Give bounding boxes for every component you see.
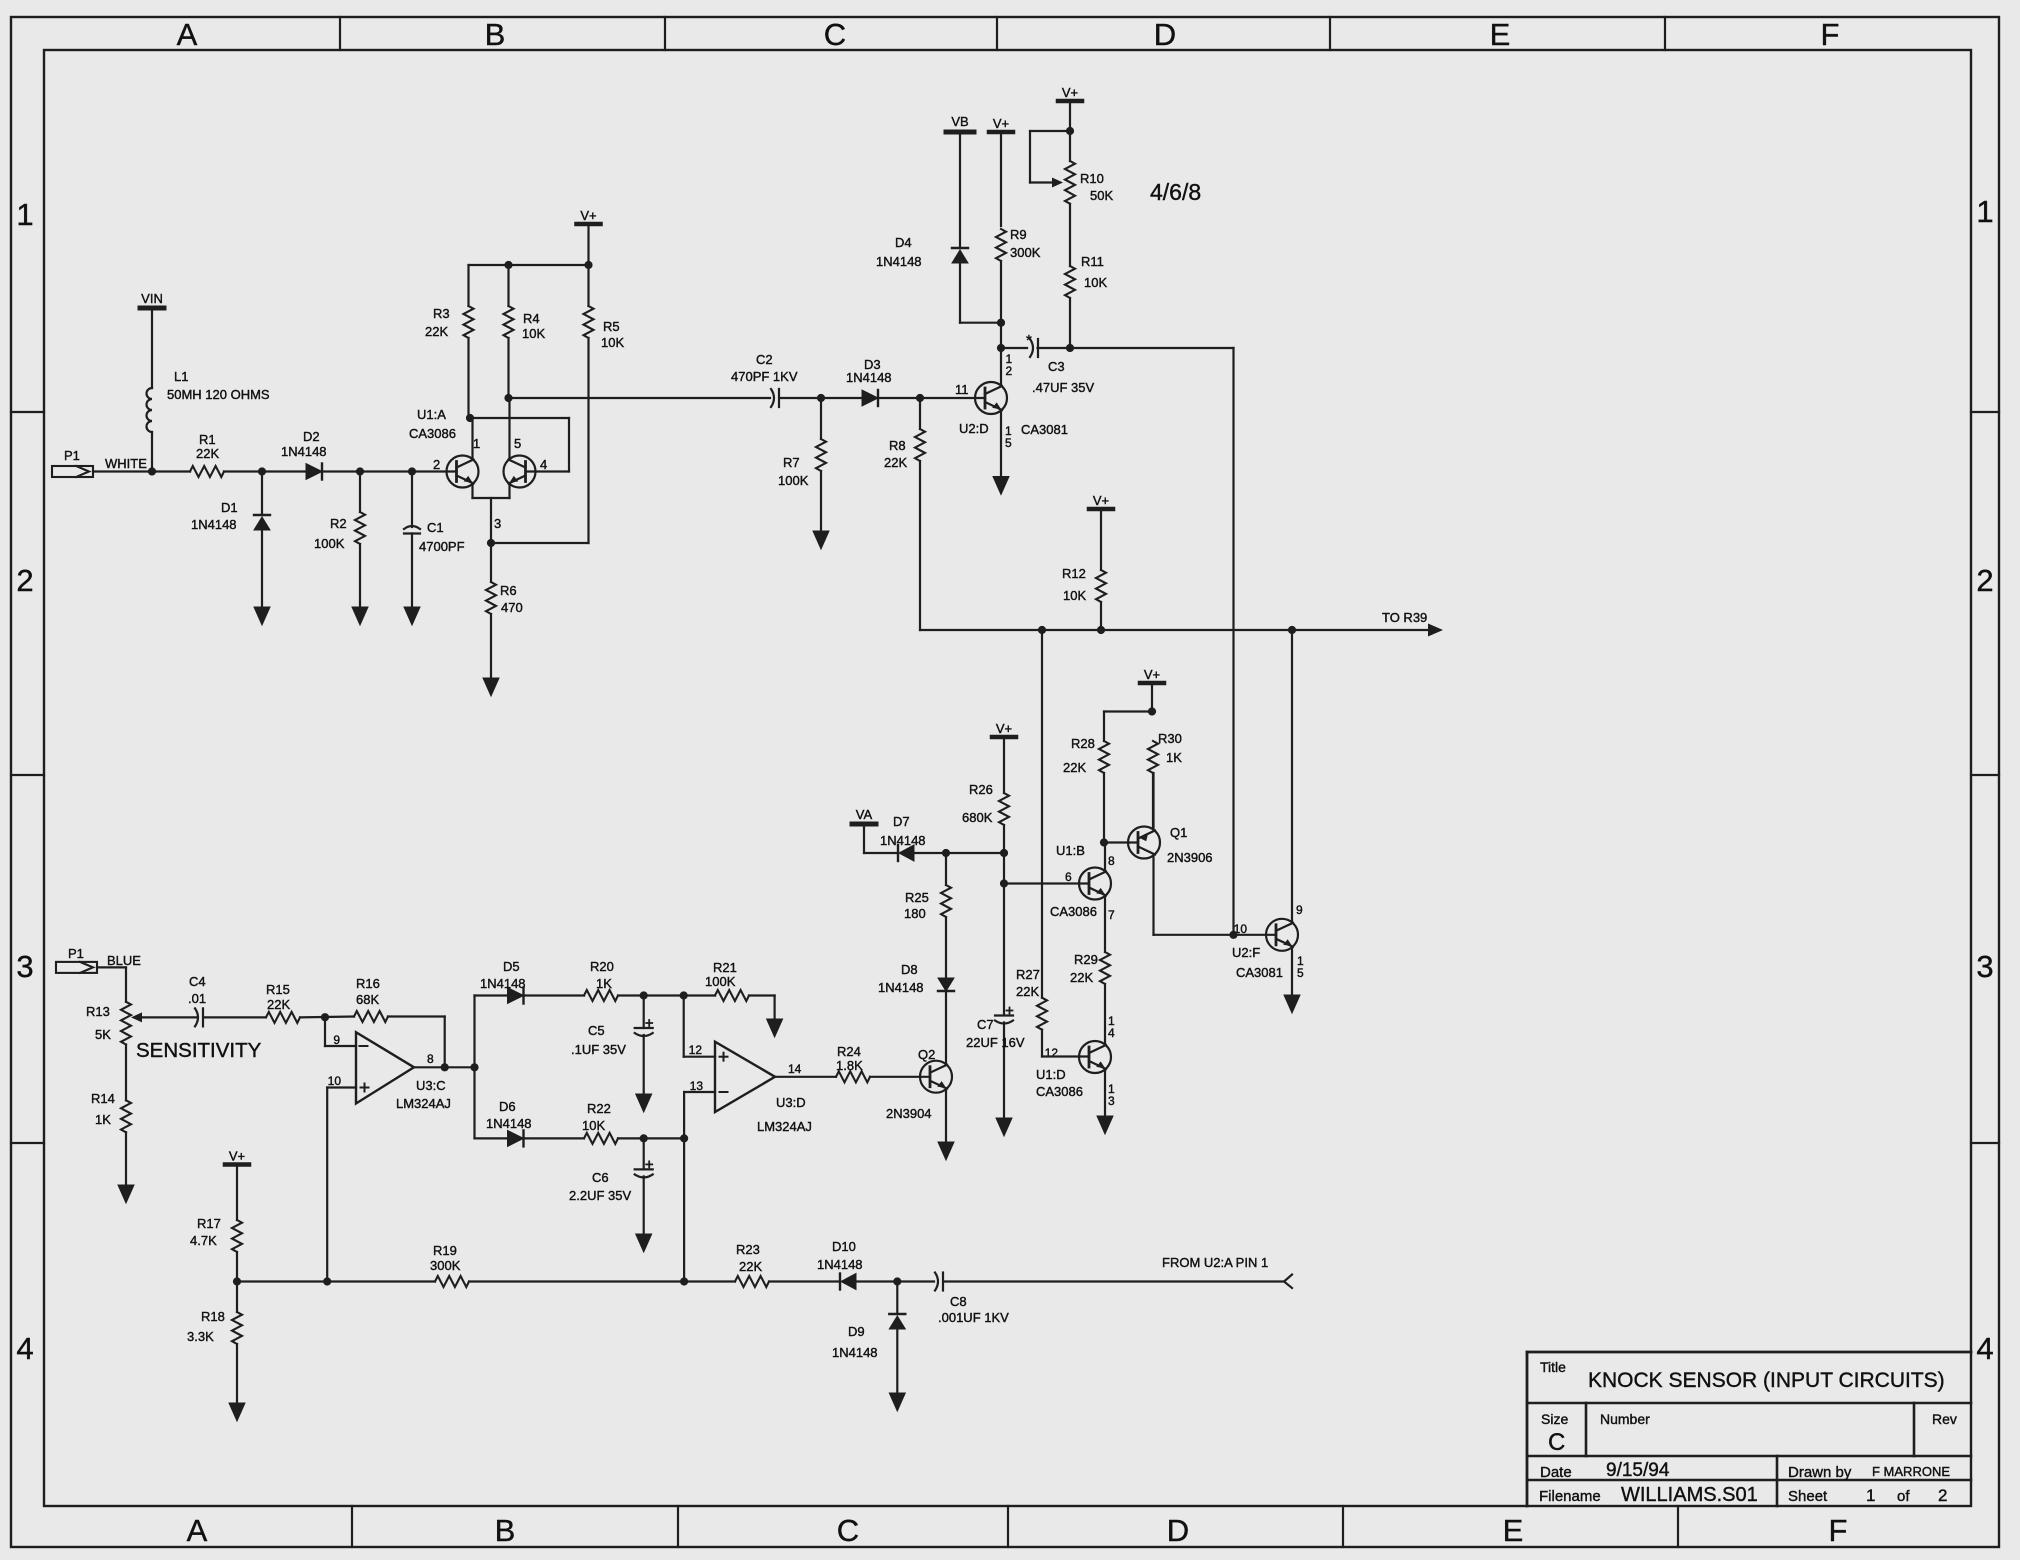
svg-text:D: D	[1167, 1513, 1189, 1548]
svg-text:22K: 22K	[1016, 984, 1039, 999]
svg-text:3.3K: 3.3K	[187, 1329, 214, 1344]
svg-text:1N4148: 1N4148	[878, 980, 924, 995]
svg-text:2N3904: 2N3904	[886, 1106, 932, 1121]
svg-text:R12: R12	[1062, 566, 1086, 581]
svg-text:C: C	[837, 1513, 859, 1548]
svg-text:R14: R14	[91, 1091, 115, 1106]
svg-text:.1UF 35V: .1UF 35V	[571, 1042, 626, 1057]
svg-text:Sheet: Sheet	[1788, 1488, 1828, 1505]
svg-text:C7: C7	[977, 1017, 994, 1032]
svg-text:2.2UF 35V: 2.2UF 35V	[569, 1188, 631, 1203]
svg-text:4: 4	[540, 457, 547, 472]
svg-text:V+: V+	[229, 1149, 245, 1164]
svg-text:U2:F: U2:F	[1232, 945, 1260, 960]
svg-text:11: 11	[955, 382, 969, 397]
svg-text:180: 180	[904, 906, 926, 921]
svg-text:1N4148: 1N4148	[817, 1257, 863, 1272]
svg-text:10K: 10K	[522, 326, 545, 341]
svg-text:C1: C1	[427, 520, 444, 535]
svg-text:R27: R27	[1016, 967, 1040, 982]
svg-text:P1: P1	[68, 946, 84, 961]
svg-text:2: 2	[433, 457, 440, 472]
svg-text:E: E	[1490, 17, 1511, 52]
svg-text:1.8K: 1.8K	[836, 1058, 863, 1073]
svg-text:R16: R16	[356, 976, 380, 991]
svg-text:2: 2	[16, 563, 33, 598]
svg-text:C3: C3	[1048, 359, 1065, 374]
svg-text:1N4148: 1N4148	[486, 1116, 532, 1131]
svg-text:50K: 50K	[1090, 188, 1113, 203]
svg-text:R24: R24	[837, 1044, 861, 1059]
svg-text:R5: R5	[603, 319, 620, 334]
svg-text:R21: R21	[713, 960, 737, 975]
svg-text:9: 9	[333, 1033, 340, 1047]
svg-text:22K: 22K	[1070, 970, 1093, 985]
svg-text:1N4148: 1N4148	[281, 444, 327, 459]
svg-text:5K: 5K	[95, 1027, 111, 1042]
svg-text:U2:D: U2:D	[959, 421, 989, 436]
svg-text:R15: R15	[266, 982, 290, 997]
svg-text:R20: R20	[590, 959, 614, 974]
svg-text:2: 2	[1938, 1486, 1947, 1505]
svg-text:R2: R2	[330, 516, 347, 531]
svg-text:CA3081: CA3081	[1021, 422, 1068, 437]
svg-text:VIN: VIN	[141, 291, 163, 306]
svg-text:of: of	[1897, 1488, 1910, 1505]
svg-text:22K: 22K	[1063, 760, 1086, 775]
svg-text:R7: R7	[783, 455, 800, 470]
svg-text:D8: D8	[901, 962, 918, 977]
svg-text:U1:D: U1:D	[1036, 1067, 1066, 1082]
svg-text:6: 6	[1065, 870, 1072, 884]
svg-text:U3:C: U3:C	[416, 1078, 446, 1093]
svg-text:R23: R23	[736, 1242, 760, 1257]
svg-text:D1: D1	[221, 500, 238, 515]
svg-text:R10: R10	[1080, 171, 1104, 186]
svg-text:4.7K: 4.7K	[190, 1233, 217, 1248]
svg-text:12: 12	[1045, 1046, 1059, 1060]
svg-text:1N4148: 1N4148	[832, 1345, 878, 1360]
svg-text:Title: Title	[1540, 1359, 1566, 1375]
svg-text:L1: L1	[174, 369, 188, 384]
svg-text:22K: 22K	[196, 446, 219, 461]
svg-text:Number: Number	[1600, 1411, 1650, 1427]
svg-text:Q1: Q1	[1170, 825, 1187, 840]
svg-text:*: *	[1026, 332, 1032, 349]
svg-text:4/6/8: 4/6/8	[1150, 179, 1201, 205]
svg-text:A: A	[187, 1513, 208, 1548]
svg-text:LM324AJ: LM324AJ	[757, 1119, 812, 1134]
svg-text:1K: 1K	[1166, 750, 1182, 765]
svg-text:4: 4	[16, 1331, 33, 1366]
svg-text:470PF 1KV: 470PF 1KV	[731, 369, 798, 384]
svg-text:12: 12	[689, 1043, 703, 1057]
svg-text:1K: 1K	[596, 976, 612, 991]
svg-text:U1:A: U1:A	[417, 407, 446, 422]
svg-text:TO R39: TO R39	[1382, 610, 1427, 625]
svg-text:300K: 300K	[1010, 245, 1041, 260]
svg-text:13: 13	[690, 1079, 704, 1093]
svg-text:680K: 680K	[962, 810, 993, 825]
svg-text:U3:D: U3:D	[776, 1095, 806, 1110]
svg-text:10K: 10K	[582, 1118, 605, 1133]
svg-text:22K: 22K	[425, 324, 448, 339]
svg-text:B: B	[495, 1513, 516, 1548]
svg-text:8: 8	[427, 1052, 434, 1066]
svg-text:C4: C4	[189, 974, 206, 989]
svg-text:3: 3	[16, 949, 33, 984]
svg-text:R25: R25	[905, 890, 929, 905]
svg-text:4700PF: 4700PF	[419, 539, 465, 554]
svg-text:R29: R29	[1074, 952, 1098, 967]
svg-text:5: 5	[1297, 966, 1304, 980]
svg-text:F: F	[1829, 1513, 1848, 1548]
svg-text:B: B	[485, 17, 506, 52]
svg-text:50MH 120 OHMS: 50MH 120 OHMS	[167, 387, 270, 402]
svg-text:9/15/94: 9/15/94	[1606, 1460, 1670, 1481]
svg-text:R17: R17	[197, 1216, 221, 1231]
svg-text:R30: R30	[1158, 731, 1182, 746]
svg-text:Date: Date	[1540, 1464, 1572, 1481]
svg-text:470: 470	[501, 600, 523, 615]
svg-text:1: 1	[1866, 1486, 1875, 1505]
svg-text:D6: D6	[499, 1099, 516, 1114]
svg-text:C2: C2	[756, 352, 773, 367]
svg-text:FROM U2:A PIN 1: FROM U2:A PIN 1	[1162, 1255, 1268, 1270]
svg-text:22K: 22K	[267, 997, 290, 1012]
svg-text:C6: C6	[592, 1170, 609, 1185]
svg-text:7: 7	[1108, 908, 1115, 922]
svg-text:D2: D2	[303, 429, 320, 444]
svg-text:WHITE: WHITE	[105, 456, 147, 471]
svg-text:F MARRONE: F MARRONE	[1872, 1464, 1950, 1479]
svg-text:R28: R28	[1071, 736, 1095, 751]
svg-text:3: 3	[494, 516, 501, 531]
svg-text:R9: R9	[1010, 227, 1027, 242]
svg-text:D: D	[1154, 17, 1176, 52]
svg-text:1N4148: 1N4148	[880, 833, 926, 848]
svg-text:R3: R3	[433, 306, 450, 321]
svg-text:R8: R8	[889, 438, 906, 453]
svg-text:BLUE: BLUE	[107, 953, 141, 968]
svg-text:D9: D9	[848, 1324, 865, 1339]
svg-text:E: E	[1503, 1513, 1524, 1548]
svg-text:R1: R1	[199, 432, 216, 447]
svg-text:R4: R4	[523, 311, 540, 326]
svg-text:Drawn by: Drawn by	[1788, 1464, 1852, 1481]
svg-text:22K: 22K	[884, 455, 907, 470]
svg-text:5: 5	[514, 436, 521, 451]
svg-text:Filename: Filename	[1539, 1488, 1601, 1505]
svg-text:V+: V+	[993, 116, 1009, 131]
svg-text:C: C	[1548, 1429, 1565, 1456]
svg-text:100K: 100K	[314, 536, 345, 551]
svg-text:C: C	[824, 17, 846, 52]
svg-text:14: 14	[788, 1062, 802, 1076]
svg-text:.01: .01	[188, 991, 206, 1006]
svg-text:V+: V+	[996, 721, 1012, 736]
svg-text:8: 8	[1108, 854, 1115, 868]
svg-text:KNOCK SENSOR (INPUT CIRCUITS): KNOCK SENSOR (INPUT CIRCUITS)	[1588, 1369, 1945, 1392]
svg-text:D10: D10	[832, 1239, 856, 1254]
svg-text:22K: 22K	[739, 1259, 762, 1274]
svg-text:V+: V+	[580, 208, 596, 223]
svg-text:LM324AJ: LM324AJ	[396, 1096, 451, 1111]
svg-text:U1:B: U1:B	[1056, 843, 1085, 858]
svg-text:22UF 16V: 22UF 16V	[966, 1035, 1025, 1050]
svg-text:68K: 68K	[356, 992, 379, 1007]
svg-text:C5: C5	[588, 1023, 605, 1038]
svg-text:D5: D5	[503, 959, 520, 974]
svg-text:4: 4	[1108, 1026, 1115, 1040]
svg-text:R26: R26	[969, 782, 993, 797]
svg-text:R13: R13	[86, 1004, 110, 1019]
svg-text:100K: 100K	[705, 974, 736, 989]
svg-text:2N3906: 2N3906	[1167, 850, 1213, 865]
svg-text:10K: 10K	[1063, 588, 1086, 603]
svg-text:Rev: Rev	[1932, 1411, 1957, 1427]
svg-text:1: 1	[1976, 194, 1993, 229]
svg-text:3: 3	[1108, 1094, 1115, 1108]
svg-text:CA3086: CA3086	[1036, 1084, 1083, 1099]
svg-text:2: 2	[1976, 563, 1993, 598]
svg-text:SENSITIVITY: SENSITIVITY	[136, 1039, 262, 1062]
svg-text:2: 2	[1006, 364, 1013, 378]
svg-text:100K: 100K	[778, 473, 809, 488]
svg-text:D4: D4	[895, 235, 912, 250]
svg-text:1N4148: 1N4148	[480, 976, 526, 991]
svg-text:Q2: Q2	[918, 1047, 935, 1062]
svg-text:1K: 1K	[95, 1112, 111, 1127]
svg-text:R11: R11	[1081, 254, 1104, 269]
svg-text:D7: D7	[893, 814, 910, 829]
svg-text:V+: V+	[1144, 667, 1160, 682]
svg-text:1: 1	[16, 197, 33, 232]
svg-text:CA3086: CA3086	[1050, 904, 1097, 919]
svg-text:10K: 10K	[601, 335, 624, 350]
svg-text:A: A	[177, 17, 198, 52]
svg-text:10: 10	[328, 1074, 342, 1088]
svg-text:WILLIAMS.S01: WILLIAMS.S01	[1621, 1484, 1758, 1506]
svg-text:F: F	[1821, 17, 1840, 52]
svg-text:300K: 300K	[430, 1258, 461, 1273]
svg-text:5: 5	[1005, 436, 1012, 450]
svg-text:1N4148: 1N4148	[191, 517, 237, 532]
svg-text:.001UF 1KV: .001UF 1KV	[938, 1310, 1009, 1325]
svg-text:R22: R22	[587, 1101, 611, 1116]
svg-text:R6: R6	[500, 583, 517, 598]
svg-text:4: 4	[1976, 1331, 1993, 1366]
svg-text:C8: C8	[950, 1294, 967, 1309]
svg-text:R18: R18	[201, 1309, 225, 1324]
svg-text:10K: 10K	[1084, 275, 1107, 290]
svg-text:1: 1	[473, 436, 480, 451]
svg-text:V+: V+	[1093, 493, 1109, 508]
svg-text:3: 3	[1976, 949, 1993, 984]
svg-text:1N4148: 1N4148	[846, 370, 892, 385]
svg-text:CA3081: CA3081	[1236, 965, 1283, 980]
svg-text:1N4148: 1N4148	[876, 254, 922, 269]
svg-text:CA3086: CA3086	[409, 426, 456, 441]
svg-text:Size: Size	[1541, 1411, 1568, 1427]
svg-text:VB: VB	[951, 114, 968, 129]
svg-text:9: 9	[1296, 903, 1303, 917]
svg-text:P1: P1	[64, 448, 80, 463]
svg-text:V+: V+	[1062, 85, 1078, 100]
svg-text:R19: R19	[433, 1243, 457, 1258]
svg-text:VA: VA	[856, 807, 873, 822]
svg-text:.47UF 35V: .47UF 35V	[1032, 380, 1094, 395]
